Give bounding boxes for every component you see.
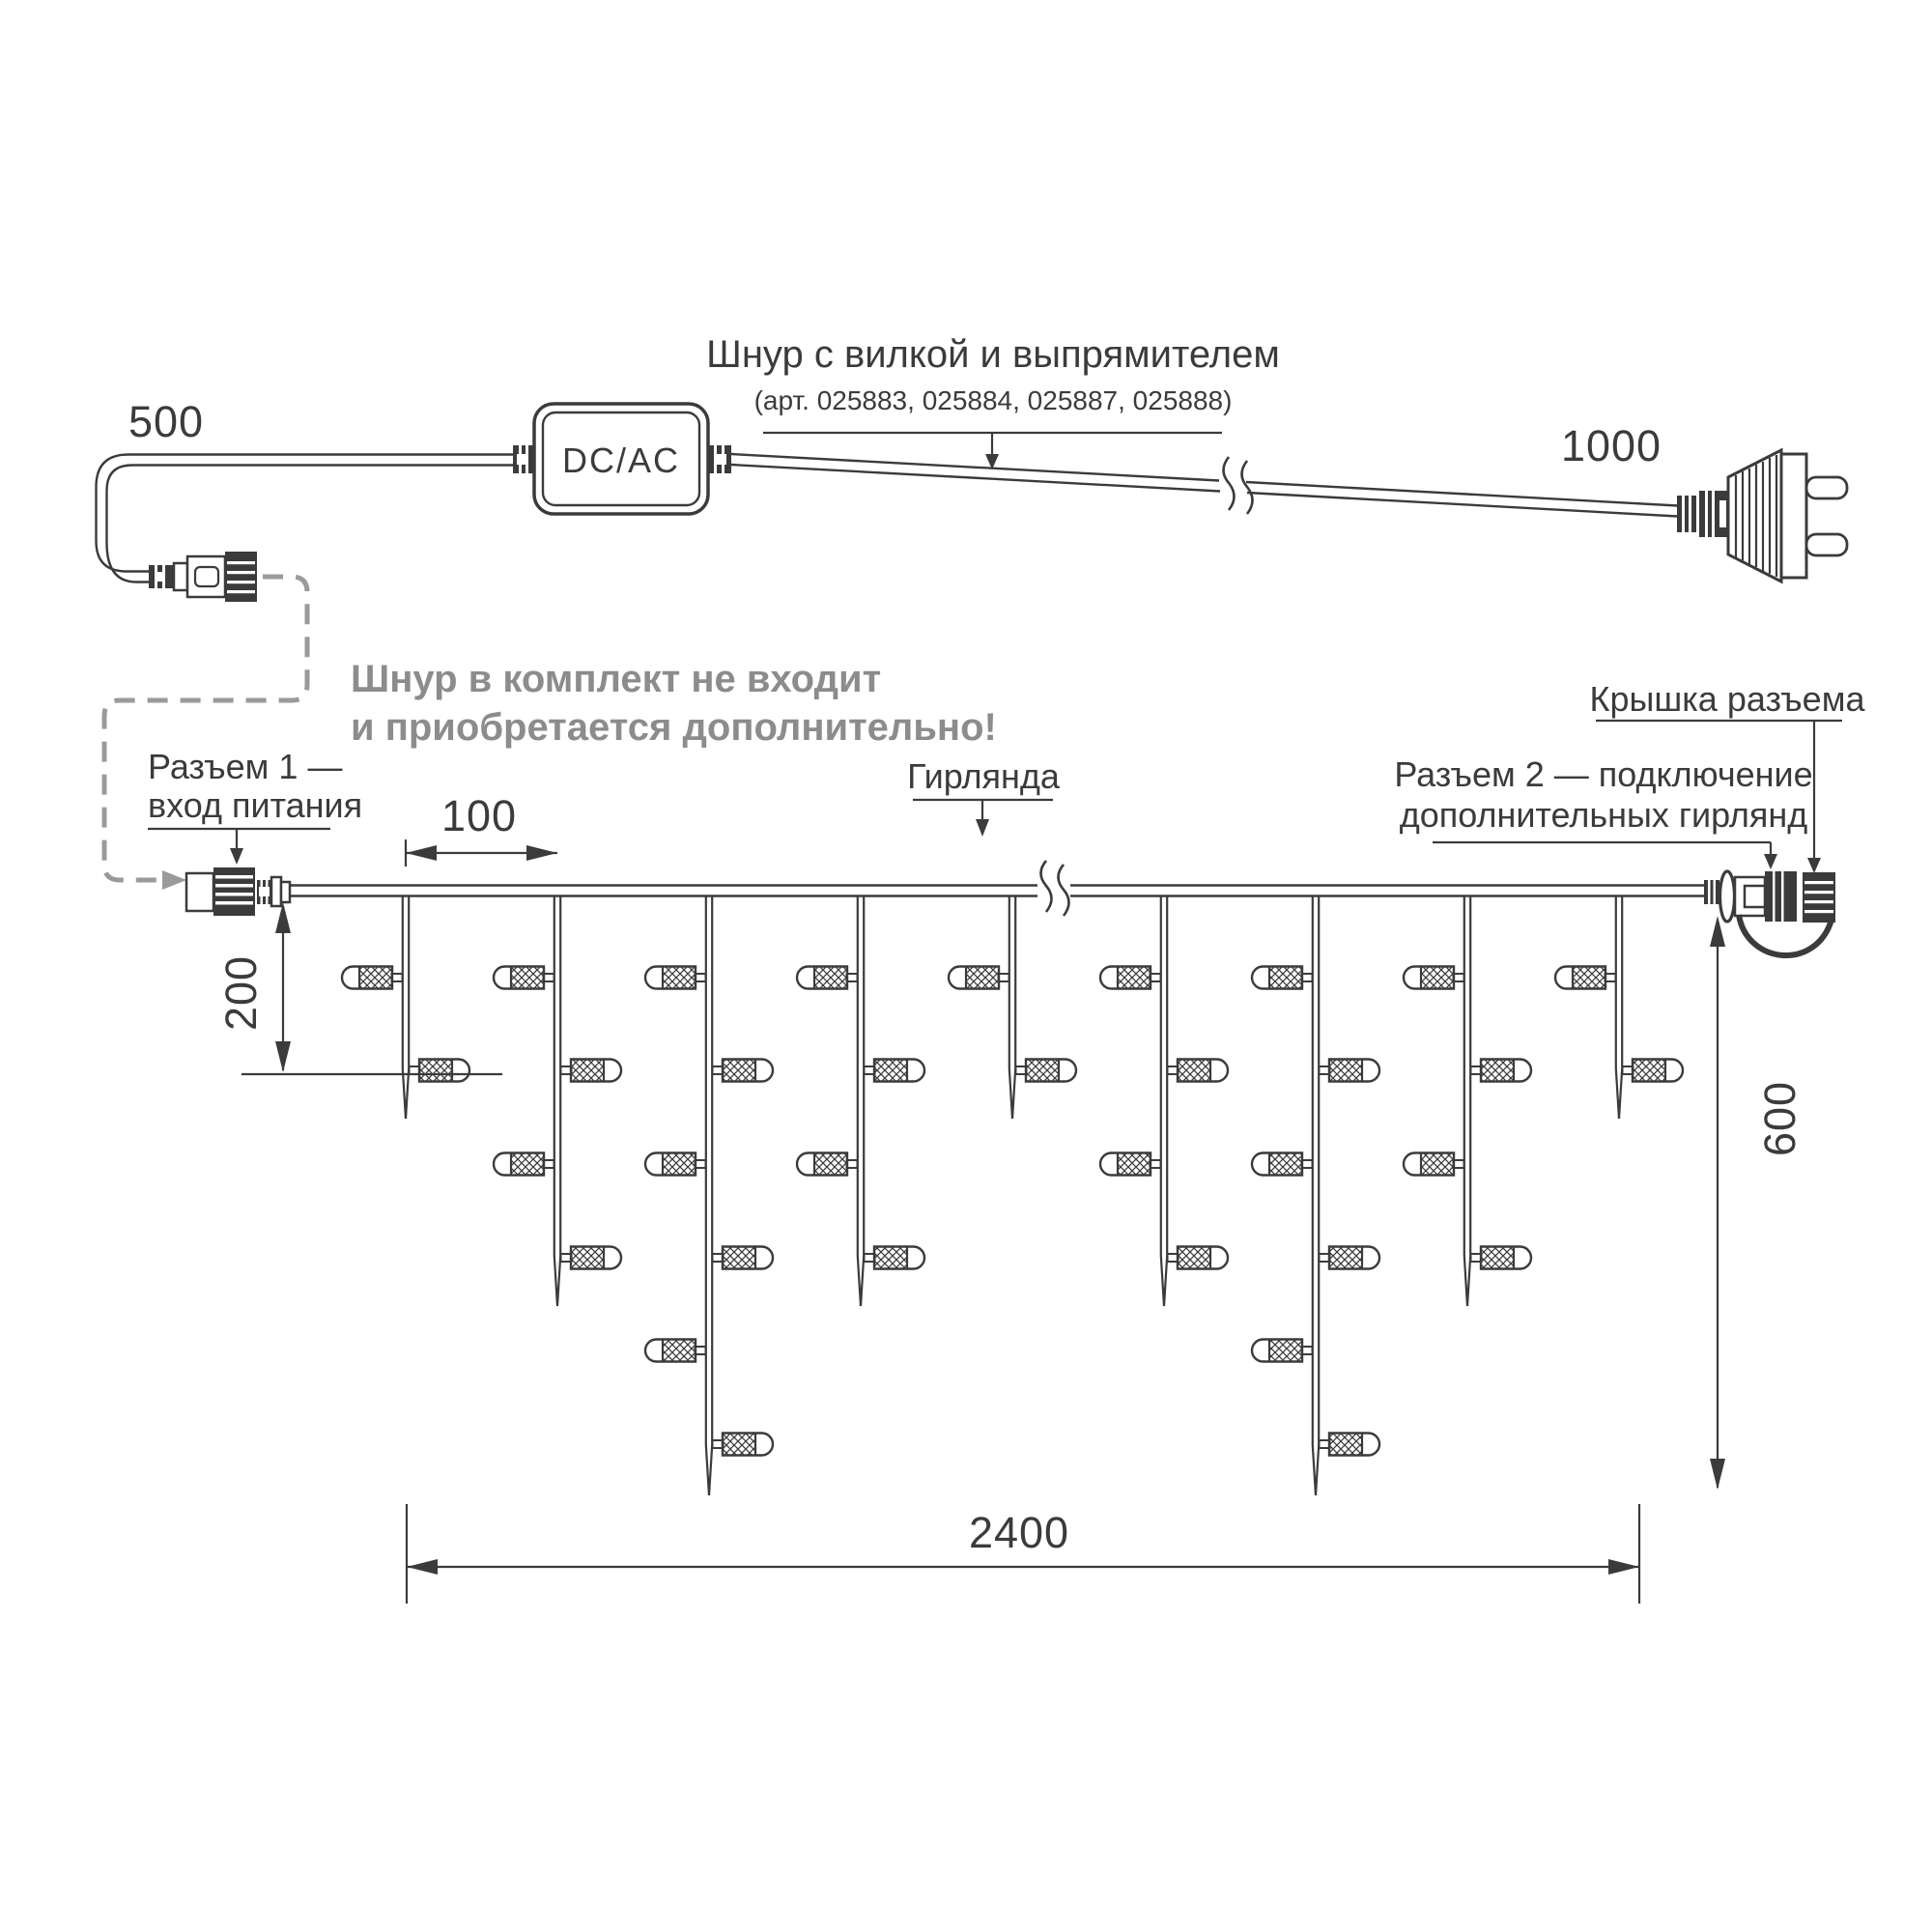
dcac-left-stub-icon [513,445,534,473]
cord-label-leader [763,433,1222,456]
cable-break-icon [1242,461,1253,514]
connector-cap-icon [1803,872,1835,923]
not-included-note: и приобретается дополнительно! [351,706,997,749]
cord-output-connector-icon [149,552,257,602]
icicle-drop [949,896,1076,1119]
dashed-connection-path [104,577,307,890]
cable-break-icon [1224,457,1235,510]
dim-200-label: 200 [216,955,266,1031]
led-bulb-icon [1016,1060,1077,1082]
led-bulb-icon [1252,1340,1313,1362]
led-bulb-icon [713,1434,774,1456]
garland-wiring-diagram: Шнур с вилкой и выпрямителем (арт. 02588… [0,0,1932,1932]
connector1-label: вход питания [148,785,362,825]
arrow-down-icon [230,848,243,865]
led-bulb-icon [713,1060,774,1082]
led-bulb-icon [797,967,858,989]
led-bulb-icon [1320,1434,1380,1456]
icicle-drop [1100,896,1228,1306]
arrow-right-icon [162,870,186,890]
connector2-label: Разъем 2 — подключение [1394,754,1812,794]
garland-wire [290,861,1704,916]
icicle-drop [645,896,773,1495]
led-bulb-icon [561,1060,622,1082]
arrow-down-icon [1764,854,1777,869]
dim-100-label: 100 [441,791,517,840]
led-bulb-icon [342,967,403,989]
connector1-icon [186,867,290,916]
led-bulb-icon [1320,1247,1380,1269]
led-bulb-icon [494,1153,554,1176]
led-bulb-icon [645,1340,706,1362]
led-bulb-icon [1555,967,1616,989]
dim-600: 600 [1710,916,1804,1490]
led-bulb-icon [1320,1060,1380,1082]
garland-label: Гирлянда [907,756,1061,796]
dim-2400-label: 2400 [969,1508,1069,1557]
led-bulb-icon [865,1247,925,1269]
led-bulb-icon [1168,1247,1229,1269]
led-bulb-icon [949,967,1009,989]
led-bulb-icon [1404,967,1463,989]
led-bulb-icon [1252,967,1313,989]
led-bulb-icon [561,1247,622,1269]
icicle-drop [1555,896,1683,1119]
led-bulb-icon [1168,1060,1229,1082]
icicle-drop [342,896,469,1119]
led-bulb-icon [645,1153,706,1176]
dim-500-label: 500 [128,397,204,446]
led-bulb-icon [1100,1153,1161,1176]
connector1-label: Разъем 1 — [148,747,342,786]
garland-diagram: Разъем 1 — вход питания Гирлянда Разъем … [148,679,1865,1604]
icicle-drop [797,896,924,1306]
led-bulb-icon [1404,1153,1463,1176]
led-bulb-icon [1471,1060,1532,1082]
dim-1000-label: 1000 [1561,421,1662,470]
cord-label: Шнур с вилкой и выпрямителем [706,333,1280,376]
arrow-down-icon [976,819,989,837]
led-bulb-icon [410,1060,470,1082]
connector2-label: дополнительных гирлянд [1400,795,1808,835]
led-bulb-icon [645,967,706,989]
led-bulb-icon [713,1247,774,1269]
cap-label: Крышка разъема [1590,679,1866,719]
not-included-note: Шнур в комплект не входит [351,658,881,700]
dcac-converter-box: DC/AC [513,404,731,514]
diagram-canvas: Шнур с вилкой и выпрямителем (арт. 02588… [0,0,1932,1932]
cable-to-plug [731,454,1678,517]
o-ring-icon [1720,871,1735,922]
arrow-down-icon [1807,858,1821,873]
cord-label-articles: (арт. 025883, 025884, 025887, 025888) [754,385,1233,415]
dim-2400: 2400 [407,1504,1639,1604]
wire-break-icon [1059,865,1069,916]
dim-600-label: 600 [1755,1081,1804,1156]
icicle-drops [342,896,1683,1495]
icicle-drop [1252,896,1379,1495]
power-plug-icon [1677,450,1847,582]
dcac-label: DC/AC [562,440,680,480]
led-bulb-icon [494,967,554,989]
led-bulb-icon [1471,1247,1532,1269]
cable-loop [97,455,535,582]
led-bulb-icon [865,1060,925,1082]
led-bulb-icon [1100,967,1161,989]
led-bulb-icon [797,1153,858,1176]
led-bulb-icon [1623,1060,1684,1082]
led-bulb-icon [1252,1153,1313,1176]
dim-100: 100 [406,791,557,867]
wire-break-icon [1041,861,1052,912]
icicle-drop [494,896,621,1306]
icicle-drop [1404,896,1531,1306]
dcac-right-stub-icon [708,445,731,473]
